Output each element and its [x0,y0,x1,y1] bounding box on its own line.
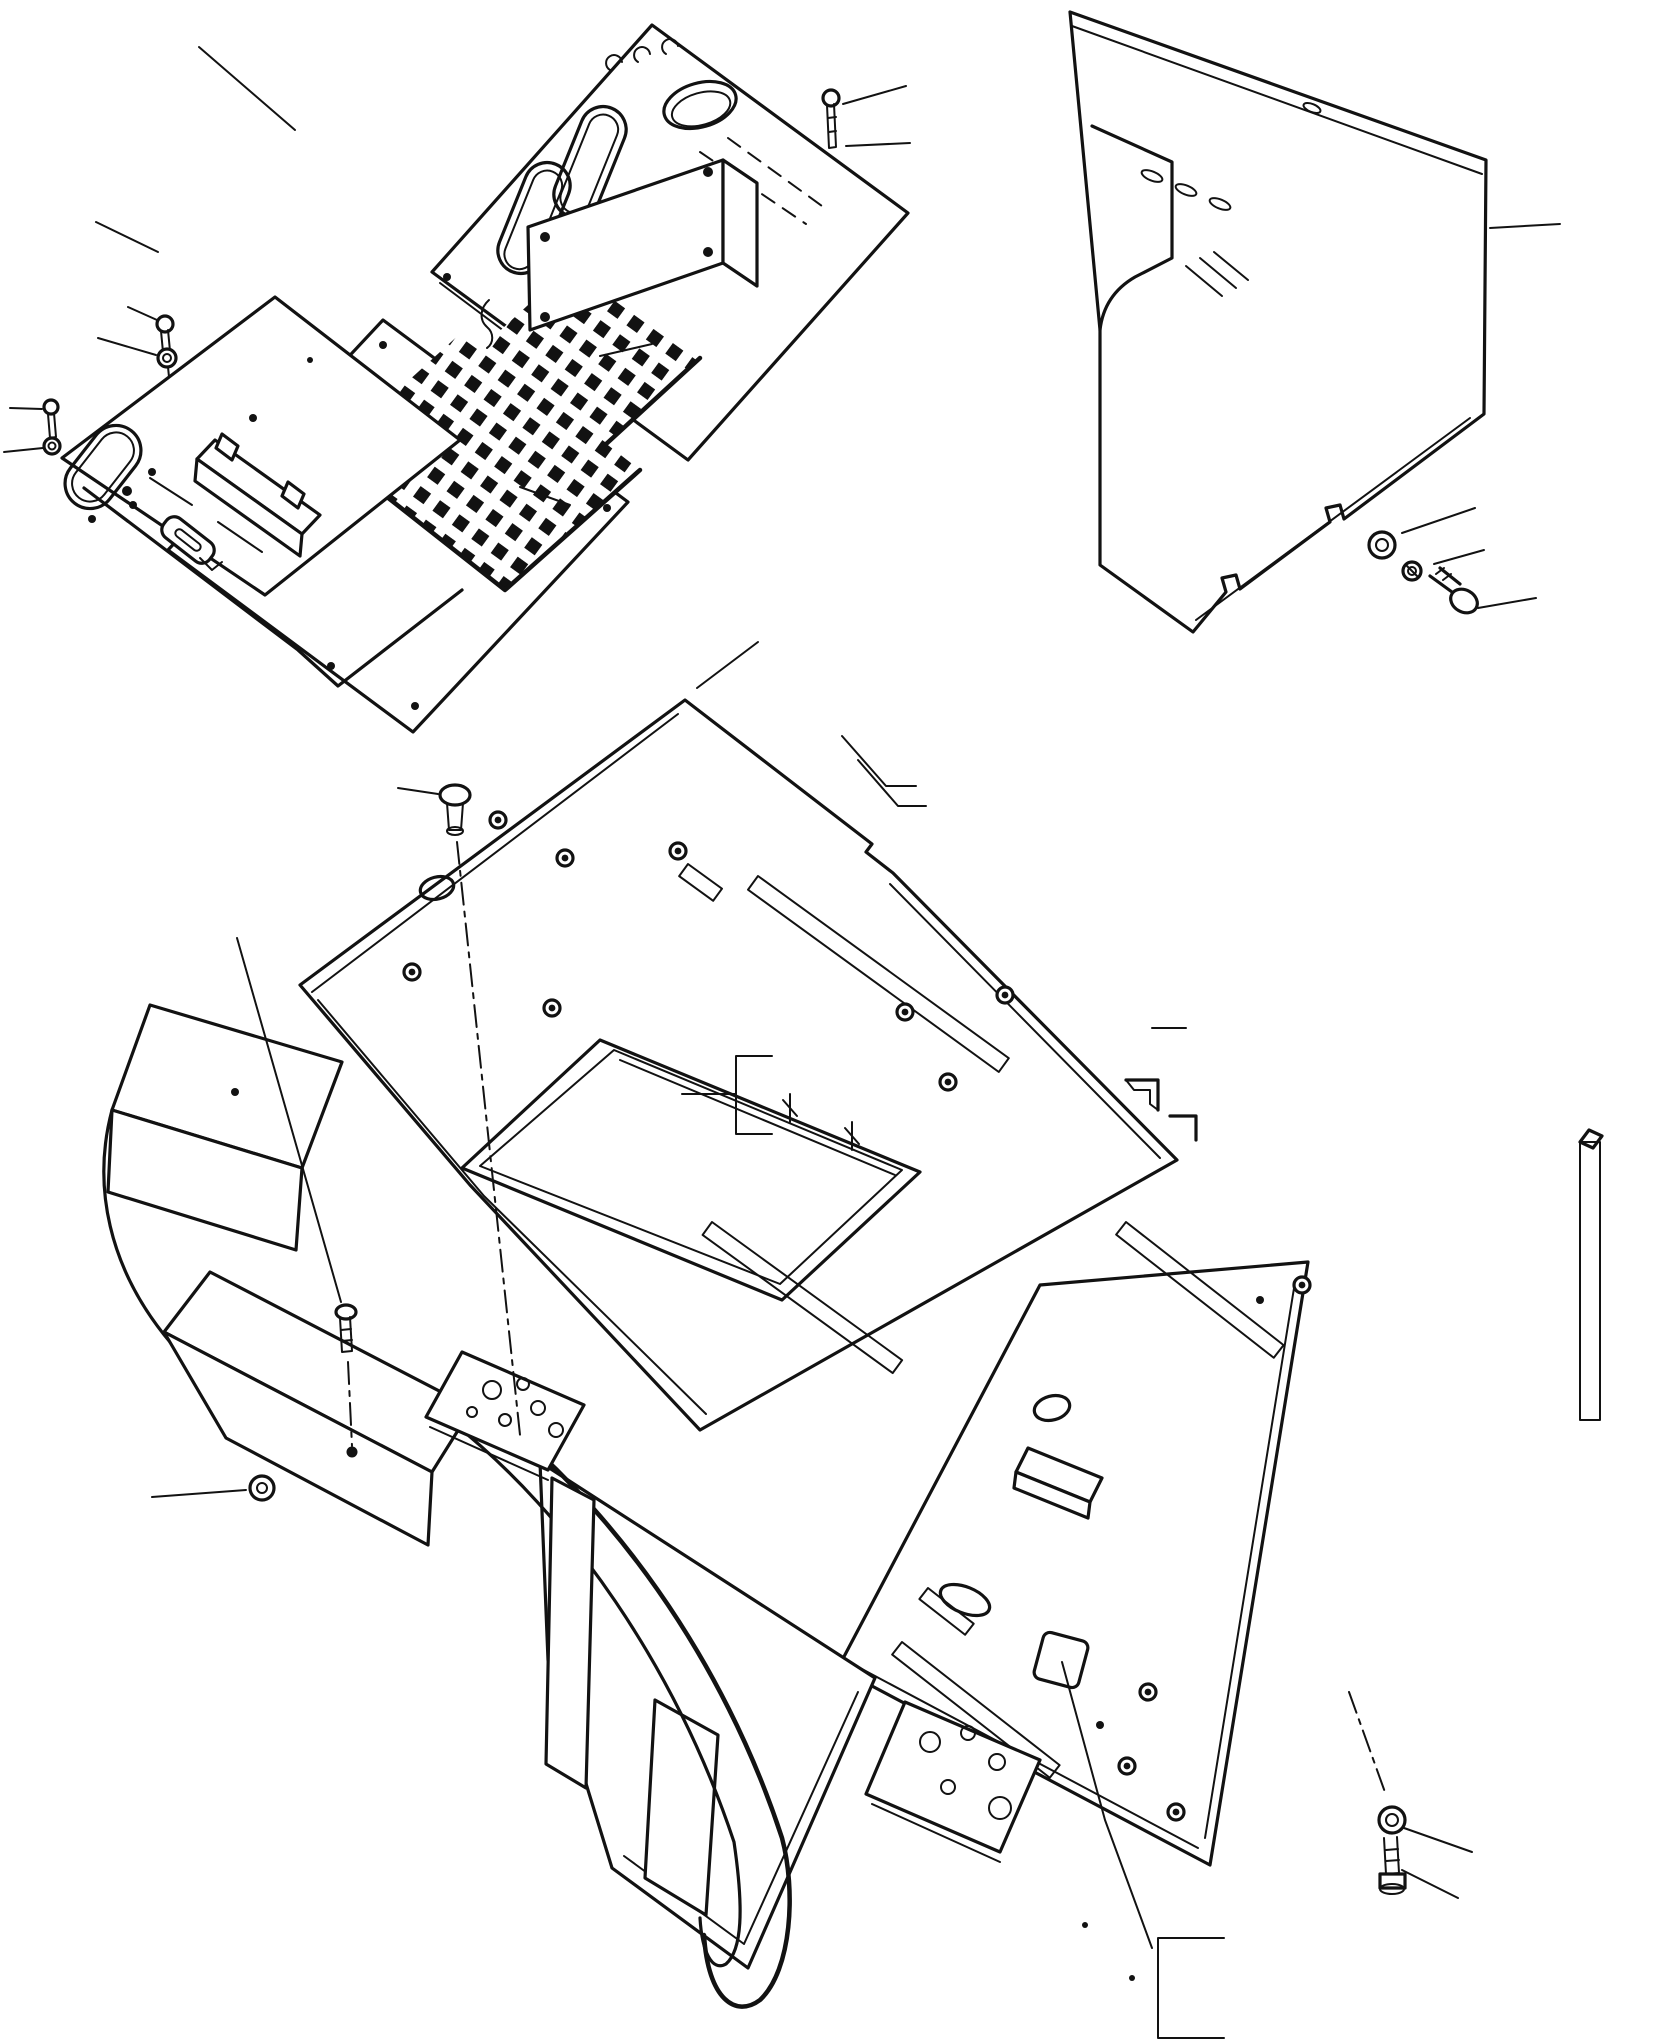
leader-line [199,47,295,130]
group-upper-left [4,25,910,732]
diagram-page [0,0,1665,2041]
screw-set-b [4,400,60,454]
leader-line [10,408,42,409]
group-upper-right [1070,12,1560,632]
grommet-washer [152,1476,274,1500]
leader-line [1402,508,1475,533]
hex-bolt [1430,568,1536,618]
vertical-seal-strip [1580,1130,1602,1420]
support-arm [164,1272,594,1788]
leader-line [1402,1870,1458,1898]
exploded-parts-diagram [0,0,1665,2041]
leader-line [128,307,157,320]
leader-line [1404,1828,1472,1852]
leader-line [846,143,910,146]
centerline [1349,1692,1386,1795]
leader-line [398,788,438,794]
leader-line [4,448,43,452]
leader-line [843,86,906,104]
leader-line [1490,224,1560,228]
group-bracket [1158,1938,1224,2038]
flat-washer [1369,508,1475,558]
perforated-plate [426,1352,584,1480]
spring-washer [1403,550,1484,580]
leader-line [98,338,156,355]
leader-line [1478,598,1536,608]
leader-line [697,642,758,688]
side-cover [1070,12,1560,632]
panel-screw [823,86,910,148]
leader-line [96,222,158,252]
leader-line [1434,550,1484,564]
group-lower-frame [104,642,1602,2038]
screw-set-a [98,307,176,377]
leader-line [842,736,916,786]
leader-line [152,1490,246,1497]
support-pillar [645,1700,718,1915]
lower-right-hardware [1349,1692,1472,1898]
